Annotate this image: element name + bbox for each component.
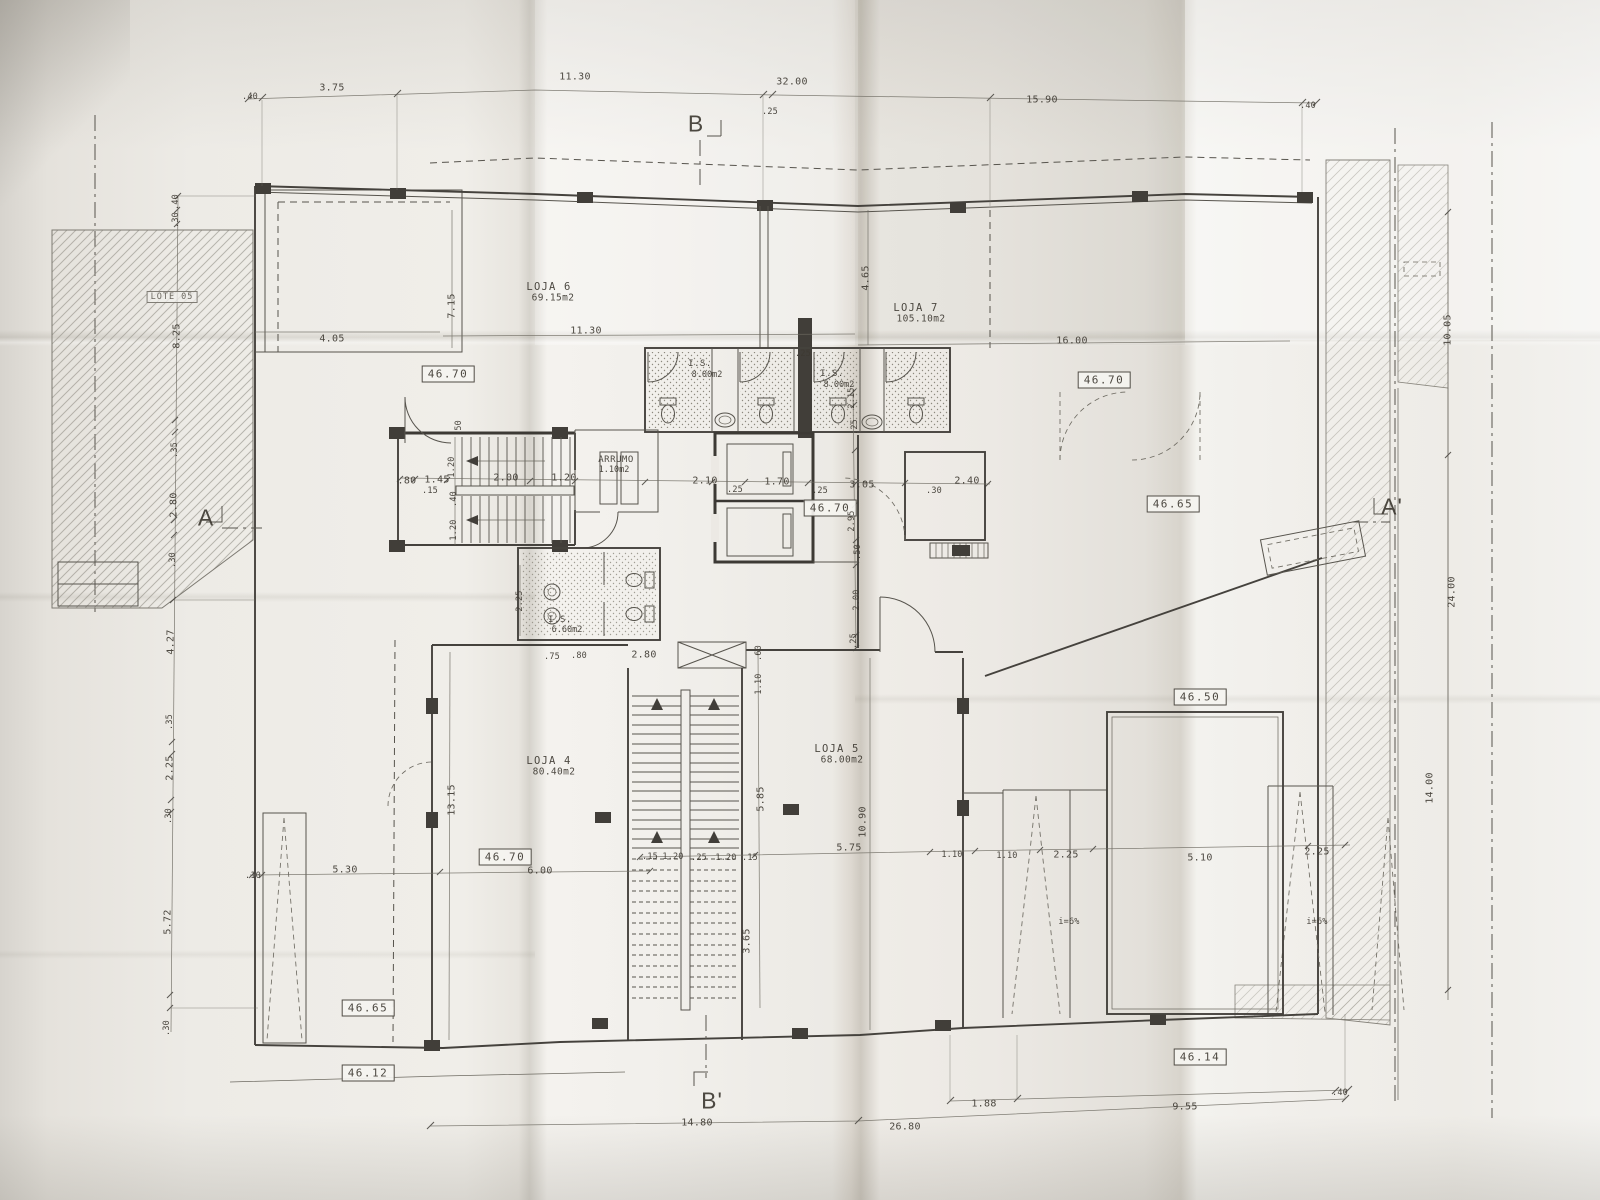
section-letter: A: [198, 505, 214, 532]
dimension-label: 2.00: [493, 473, 518, 484]
dimension-label: 14.80: [681, 1118, 713, 1129]
dimension-label: .30: [168, 552, 178, 568]
room-name: ARRUMO: [598, 455, 634, 465]
dimension-label: 2.25: [515, 590, 525, 611]
dimension-label: .30: [164, 808, 174, 824]
dimension-label: 2.00: [852, 589, 862, 610]
room-area: 68.00m2: [821, 755, 864, 766]
section-letter: B': [701, 1088, 723, 1115]
dimension-label: .25: [850, 419, 860, 435]
dimension-label: 4.27: [166, 629, 177, 654]
room-name: I.S.: [820, 369, 844, 379]
room-area: 6.60m2: [552, 625, 583, 635]
dimension-label: 4.65: [861, 265, 872, 290]
dimension-label: .30: [171, 212, 181, 228]
dimension-label: 3.65: [742, 928, 753, 953]
elevation-badge: 46.50: [1174, 689, 1227, 706]
dimension-label: .40: [449, 491, 459, 507]
dimension-label: .10: [245, 871, 261, 881]
dimension-label: 2.40: [954, 476, 979, 487]
dimension-label: 1.20: [662, 852, 683, 862]
dimension-label: .80: [571, 651, 587, 661]
dimension-label: 24.00: [1447, 576, 1458, 608]
dimension-label: 1.20: [551, 473, 576, 484]
dimension-label: 16.00: [1056, 336, 1088, 347]
dimension-label: 7.15: [447, 293, 458, 318]
room-area: 105.10m2: [897, 314, 946, 325]
elevation-badge: 46.12: [342, 1065, 395, 1082]
dimension-label: .25: [795, 349, 811, 359]
dimension-label: i=6%: [1306, 917, 1327, 927]
dimension-label: 2.25: [1304, 847, 1329, 858]
elevation-badge: 46.65: [342, 1000, 395, 1017]
room-area: 69.15m2: [532, 293, 575, 304]
dimension-label: 1.45: [424, 475, 449, 486]
elevation-badge: 46.70: [422, 366, 475, 383]
dimension-label: 8.25: [172, 323, 183, 348]
section-letter: A': [1381, 494, 1403, 521]
dimension-label: 3.75: [319, 83, 344, 94]
dimension-label: .25: [762, 107, 778, 117]
dimension-label: 5.10: [1187, 853, 1212, 864]
photographed-blueprint: .s1{stroke:#57544d;stroke-width:1;fill:n…: [0, 0, 1600, 1200]
dimension-label: 2.15: [847, 387, 857, 408]
room-name: LOJA 4: [526, 755, 571, 767]
dimension-label: 11.30: [570, 326, 602, 337]
dimension-label: 1.10: [754, 673, 764, 694]
dimension-label: 5.72: [163, 909, 174, 934]
dimension-label: 11.30: [559, 72, 591, 83]
dimension-label: 14.00: [1425, 772, 1436, 804]
dimension-label: 6.00: [527, 866, 552, 877]
dimension-label: 32.00: [776, 77, 808, 88]
elevation-badge: 46.65: [1147, 496, 1200, 513]
dimension-label: .60: [754, 645, 764, 661]
elevation-badge: 46.14: [1174, 1049, 1227, 1066]
dimension-label: .30: [926, 486, 942, 496]
dimension-label: .25: [849, 633, 859, 649]
room-name: LOJA 7: [893, 302, 938, 314]
dimension-label: .40: [242, 92, 258, 102]
dimension-label: .25: [812, 486, 828, 496]
dimension-label: .40: [1300, 101, 1316, 111]
section-letter: B: [688, 111, 704, 138]
dimension-label: 2.80: [169, 492, 180, 517]
dimension-label: 1.10: [941, 850, 962, 860]
label-layer: .403.7511.3032.00.2515.90.40BB'AA'.40.30…: [0, 0, 1600, 1200]
elevation-badge: 46.70: [1078, 372, 1131, 389]
dimension-label: i=6%: [1058, 917, 1079, 927]
dimension-label: 5.85: [756, 786, 767, 811]
dimension-label: .50: [454, 420, 464, 436]
dimension-label: .15: [422, 486, 438, 496]
dimension-label: 13.15: [447, 784, 458, 816]
elevation-badge: 46.70: [479, 849, 532, 866]
dimension-label: 1.88: [971, 1099, 996, 1110]
dimension-label: .75: [544, 652, 560, 662]
dimension-label: 10.05: [1443, 314, 1454, 346]
dimension-label: .35: [170, 442, 180, 458]
dimension-label: 1.10: [996, 851, 1017, 861]
dimension-label: 1.20: [449, 519, 459, 540]
dimension-label: 10.90: [858, 806, 869, 838]
dimension-label: 2.10: [692, 476, 717, 487]
dimension-label: 5.75: [836, 843, 861, 854]
dimension-label: .15: [642, 852, 658, 862]
dimension-label: 2.25: [165, 755, 176, 780]
dimension-label: 1.70: [764, 477, 789, 488]
dimension-label: .35: [165, 714, 175, 730]
dimension-label: .30: [162, 1020, 172, 1036]
room-name: I.S.: [688, 359, 712, 369]
dimension-label: 26.80: [889, 1122, 921, 1133]
room-area: 1.10m2: [599, 465, 630, 475]
lot-label: LOTE 05: [147, 291, 198, 303]
dimension-label: .15: [742, 853, 758, 863]
dimension-label: .80: [398, 476, 417, 487]
dimension-label: 1.20: [715, 853, 736, 863]
dimension-label: 4.05: [319, 334, 344, 345]
dimension-label: .40: [171, 194, 181, 210]
room-name: I.S.: [548, 615, 572, 625]
dimension-label: 1.20: [447, 456, 457, 477]
dimension-label: 2.25: [1053, 850, 1078, 861]
dimension-label: 9.55: [1172, 1102, 1197, 1113]
room-area: 80.40m2: [533, 767, 576, 778]
dimension-label: 15.90: [1026, 95, 1058, 106]
room-name: LOJA 6: [526, 281, 571, 293]
dimension-label: 5.30: [332, 865, 357, 876]
dimension-label: .25: [691, 853, 707, 863]
dimension-label: .50: [853, 544, 863, 560]
room-name: LOJA 5: [814, 743, 859, 755]
dimension-label: 2.95: [847, 510, 857, 531]
room-area: 8.00m2: [692, 370, 723, 380]
dimension-label: .25: [727, 485, 743, 495]
dimension-label: 3.05: [849, 480, 874, 491]
dimension-label: .40: [1332, 1088, 1348, 1098]
dimension-label: 2.80: [631, 650, 656, 661]
